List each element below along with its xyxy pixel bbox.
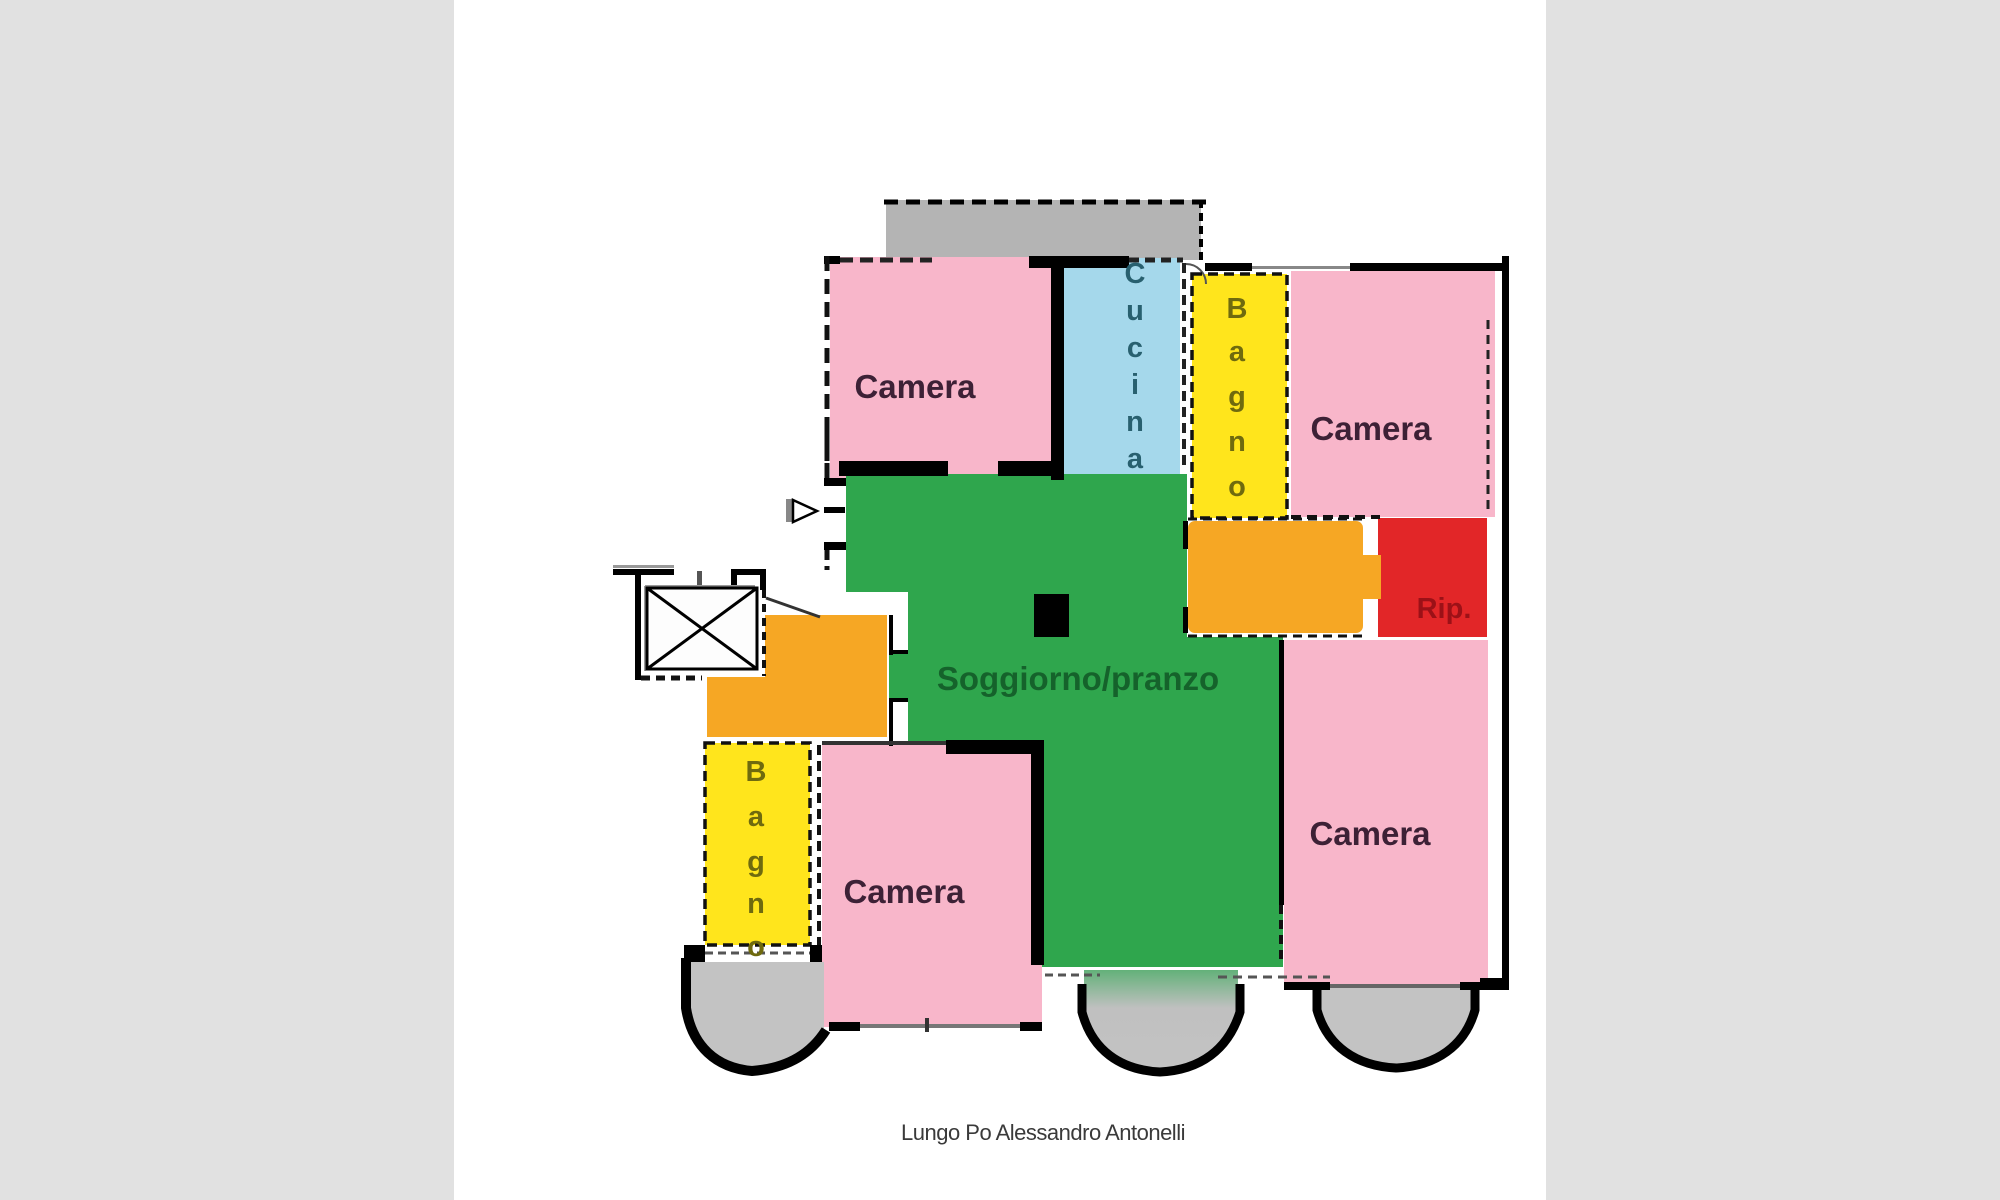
svg-text:Lungo Po Alessandro Antonelli: Lungo Po Alessandro Antonelli [901, 1120, 1185, 1145]
svg-text:Camera: Camera [854, 368, 976, 405]
svg-text:Camera: Camera [843, 873, 965, 910]
svg-text:a: a [748, 801, 765, 833]
svg-text:o: o [747, 931, 765, 963]
svg-text:Soggiorno/pranzo: Soggiorno/pranzo [937, 660, 1219, 697]
svg-text:n: n [1228, 426, 1246, 458]
svg-text:a: a [1229, 336, 1246, 368]
svg-text:Rip.: Rip. [1417, 593, 1472, 625]
svg-text:Camera: Camera [1309, 815, 1431, 852]
svg-text:o: o [1228, 471, 1246, 503]
svg-text:u: u [1126, 295, 1144, 327]
svg-text:C: C [1125, 258, 1146, 290]
svg-text:a: a [1127, 443, 1144, 475]
svg-text:i: i [1131, 369, 1139, 401]
svg-text:B: B [1227, 293, 1248, 325]
svg-text:Camera: Camera [1310, 410, 1432, 447]
svg-text:B: B [746, 756, 767, 788]
svg-text:n: n [1126, 406, 1144, 438]
svg-text:g: g [1228, 381, 1246, 413]
svg-text:g: g [747, 846, 765, 878]
svg-text:c: c [1127, 332, 1143, 364]
svg-text:n: n [747, 888, 765, 920]
